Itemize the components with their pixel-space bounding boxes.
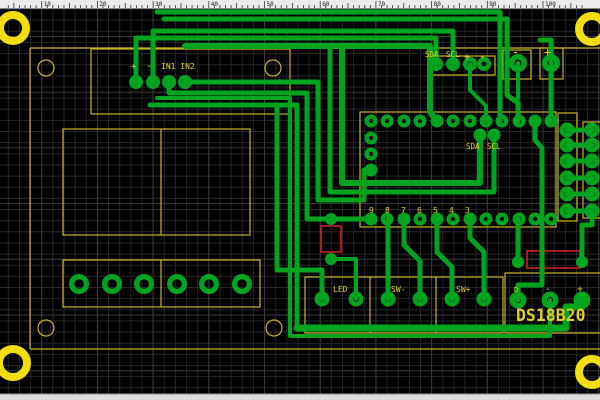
silk-label: D xyxy=(514,286,518,294)
silk-label: 8 xyxy=(385,206,390,215)
ruler-label: 50 xyxy=(267,1,275,8)
ruler-label: 40 xyxy=(211,1,219,8)
ruler-label: 30 xyxy=(155,1,163,8)
silk-label: - xyxy=(545,284,551,295)
silk-label: + xyxy=(131,62,137,72)
silk-label: LED xyxy=(333,285,348,294)
silk-label: 3 xyxy=(465,206,470,215)
silk-label: 7 xyxy=(401,206,406,215)
top-ruler xyxy=(0,0,600,8)
silk-label: SCL xyxy=(487,142,501,151)
silk-label: SW+ xyxy=(456,285,471,294)
silk-label: SW- xyxy=(391,285,405,294)
silk-label: - xyxy=(479,50,486,63)
part-name-label: DS18B20 xyxy=(516,306,586,325)
ruler-label: 20 xyxy=(99,1,107,8)
horizontal-scrollbar[interactable] xyxy=(0,394,600,400)
silk-label: - xyxy=(512,45,519,59)
silk-label: + xyxy=(464,52,470,63)
silk-label: 9 xyxy=(369,206,374,215)
silk-label: + xyxy=(544,45,551,59)
ruler-label: 60 xyxy=(322,1,330,8)
ruler-label: 80 xyxy=(434,1,442,8)
silk-label: SCL xyxy=(446,50,460,59)
pcb-canvas[interactable]: +-IN1 IN2SDASCL+--+SDASCL9876543LEDSW-SW… xyxy=(0,0,600,400)
ruler-label: 10 xyxy=(44,1,52,8)
silk-label: 4 xyxy=(449,206,454,215)
silk-label: IN1 IN2 xyxy=(161,62,195,71)
ruler-label: 90 xyxy=(489,1,497,8)
pcb-editor-root: +-IN1 IN2SDASCL+--+SDASCL9876543LEDSW-SW… xyxy=(0,0,600,400)
ruler-label: 100 xyxy=(545,1,556,8)
silk-label: SDA xyxy=(466,142,480,151)
silk-label: 5 xyxy=(433,206,438,215)
silk-label: + xyxy=(577,284,583,295)
silk-label: 6 xyxy=(417,206,422,215)
ruler-label: 70 xyxy=(378,1,386,8)
silk-label: - xyxy=(146,61,152,72)
silk-label: SDA xyxy=(425,50,439,59)
